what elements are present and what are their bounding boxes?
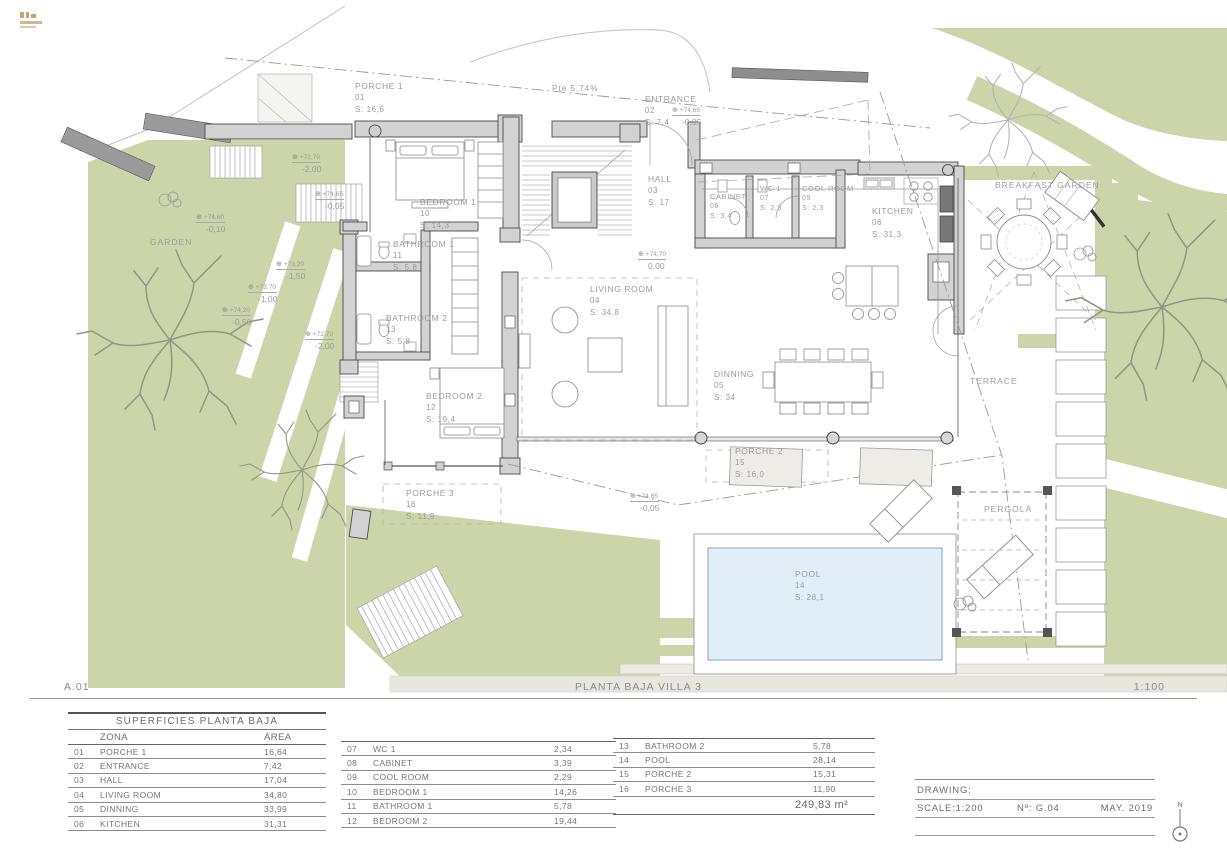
logo-watermark [18, 10, 52, 35]
pool [694, 534, 956, 674]
elevation-marker: ⊕+73,20 -1,50 [276, 260, 305, 281]
table-row: 04LIVING ROOM34,80 [68, 788, 326, 802]
table-row: 13BATHROOM 25,78 [613, 739, 875, 753]
table-row: 08CABINET3,39 [341, 756, 616, 770]
elevation-marker: ⊕+74,20 -0,50 [222, 306, 251, 327]
footer-rule [30, 698, 1197, 699]
table-row: 12BEDROOM 219,44 [341, 814, 616, 828]
survey-point-icon: ⊕ [630, 493, 636, 500]
zone-label-garden: GARDEN [150, 237, 192, 247]
room-label-coolroom: COOL ROOM09S: 2,3 [802, 184, 854, 214]
table-row: 01PORCHE 116,64 [68, 745, 326, 759]
column [943, 165, 954, 176]
zone-label-pergola: PERGOLA [984, 504, 1032, 514]
room-label-bathroom1: BATHROOM 111S: 5,8 [393, 238, 455, 274]
title-block-meta: SCALE:1:200 Nº: G.04 MAY. 2019 [915, 800, 1155, 818]
room-label-wc1: WC 107S: 2,3 [760, 184, 782, 214]
room-label-cabinet: CABINET08S: 3,4 [710, 192, 747, 222]
sheet-title: PLANTA BAJA VILLA 3 [575, 681, 702, 693]
title-block: DRAWING: SCALE:1:200 Nº: G.04 MAY. 2019 [915, 779, 1155, 836]
col-area: ÁREA [264, 732, 326, 743]
wardrobe [478, 142, 503, 218]
elevation-marker: ⊕+73,70 -1,00 [248, 283, 277, 304]
column [369, 125, 381, 137]
table-row: 05DINNING33,99 [68, 803, 326, 817]
elevation-marker: ⊕+72,70 -2,00 [292, 153, 321, 174]
survey-point-icon: ⊕ [222, 307, 228, 314]
drawing-sheet: PORCHE 101S: 16,6 ENTRANCE02S: 7,4 HALL0… [0, 0, 1227, 867]
table-row: 16PORCHE 311,90 [613, 782, 875, 796]
elevation-marker: ⊕+74,65 -0,05 [315, 190, 344, 211]
living-furniture [519, 306, 688, 407]
table-title: SUPERFICIES PLANTA BAJA [68, 712, 326, 730]
elevation-marker: ⊕+74,70 0,00 [638, 250, 666, 271]
lower-apron-2 [390, 676, 1227, 692]
survey-point-icon: ⊕ [248, 284, 254, 291]
areas-table-1: SUPERFICIES PLANTA BAJA ZONA ÁREA 01PORC… [68, 712, 326, 831]
room-label-living: LIVING ROOM04S: 34,8 [590, 283, 653, 319]
table-row: 07WC 12,34 [341, 742, 616, 756]
survey-point-icon: ⊕ [276, 261, 282, 268]
table-row: 03HALL17,04 [68, 774, 326, 788]
room-label-hall: HALL03S: 17 [648, 173, 672, 209]
drawing-scale: SCALE:1:200 [917, 803, 1017, 814]
areas-table-2: 07WC 12,34 08CABINET3,39 09COOL ROOM2,29… [341, 741, 616, 828]
dining-set [763, 349, 883, 414]
table-row: 06KITCHEN31,31 [68, 817, 326, 831]
room-label-porche2: PORCHE 215S: 16,0 [735, 445, 783, 481]
room-label-pool: POOL14S: 28,1 [795, 568, 825, 604]
room-label-porche3: PORCHE 316S: 11,9 [406, 487, 454, 523]
survey-point-icon: ⊕ [638, 251, 644, 258]
table-row: 15PORCHE 215,31 [613, 768, 875, 782]
elevation-marker: ⊕+74,60 -0,10 [196, 213, 225, 234]
slope-annotation: Pte 5,74% [552, 83, 598, 93]
north-label: N [1166, 802, 1194, 809]
room-label-bedroom2: BEDROOM 212S: 19,4 [426, 390, 482, 426]
north-arrow-icon: N [1166, 802, 1194, 848]
room-label-porche1: PORCHE 101S: 16,6 [355, 80, 403, 116]
table-row: 14POOL28,14 [613, 753, 875, 767]
table-total-row: 249,83 m² [613, 797, 875, 815]
table-row: 02ENTRANCE7,42 [68, 759, 326, 773]
sheet-scale: 1:100 [1134, 681, 1165, 693]
areas-table-3: 13BATHROOM 25,78 14POOL28,14 15PORCHE 21… [613, 738, 875, 815]
survey-point-icon: ⊕ [315, 191, 321, 198]
zone-label-terrace: TERRACE [970, 376, 1018, 386]
survey-point-icon: ⊕ [672, 107, 678, 114]
total-area: 249,83 m² [795, 799, 875, 811]
table-row: 10BEDROOM 114,26 [341, 785, 616, 799]
elevation-marker: ⊕+74,65 -0,05 [672, 106, 701, 127]
room-label-kitchen: KITCHEN06S: 31,3 [872, 205, 914, 241]
terrace-steps [1056, 276, 1106, 646]
table-row: 11BATHROOM 15,78 [341, 800, 616, 814]
closet-shelves [452, 238, 478, 354]
elevation-marker: ⊕+72,70 -2,00 [305, 330, 334, 351]
parking-pad [258, 74, 312, 122]
drawing-label: DRAWING: [915, 780, 1155, 800]
elevation-marker: ⊕+74,65 -0,05 [630, 492, 659, 513]
drawing-date: MAY. 2019 [1092, 803, 1153, 814]
site-plan-graphic [0, 0, 1227, 700]
survey-point-icon: ⊕ [305, 331, 311, 338]
survey-point-icon: ⊕ [196, 214, 202, 221]
sheet-code: A.01 [64, 681, 90, 693]
table-row: 09COOL ROOM2,29 [341, 771, 616, 785]
survey-point-icon: ⊕ [292, 154, 298, 161]
drawing-number: Nº: G.04 [1017, 803, 1092, 814]
room-label-dinning: DINNING05S: 34 [714, 368, 754, 404]
room-label-bedroom1: BEDROOM 110S: 14,3 [420, 196, 476, 232]
elevator [552, 172, 597, 228]
table-header: ZONA ÁREA [68, 730, 326, 745]
room-label-bathroom2: BATHROOM 213S: 5,8 [386, 312, 448, 348]
col-zona: ZONA [100, 732, 264, 743]
zone-label-breakfast-garden: BREAKFAST GARDEN [995, 180, 1100, 190]
